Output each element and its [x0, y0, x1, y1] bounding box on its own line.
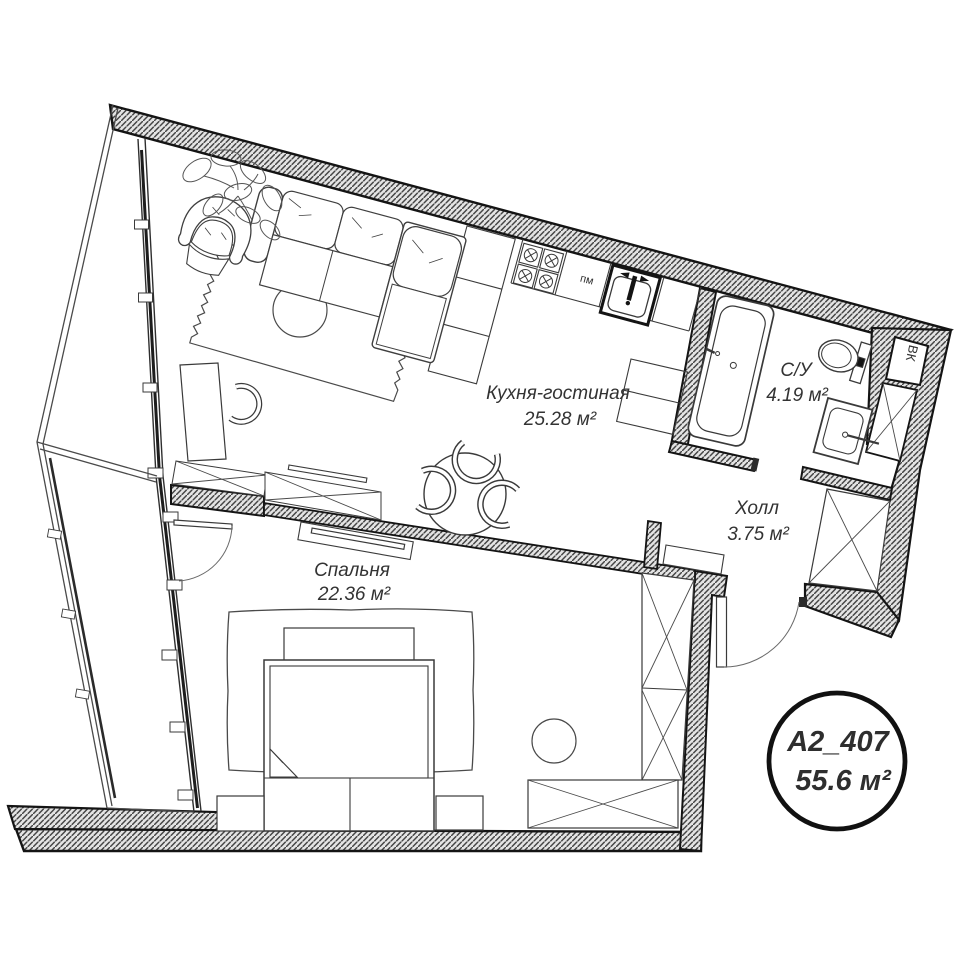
svg-text:Холл: Холл [734, 498, 779, 519]
svg-text:Кухня-гостиная: Кухня-гостиная [486, 383, 630, 404]
svg-text:22.36 м²: 22.36 м² [317, 584, 391, 605]
svg-text:4.19 м²: 4.19 м² [766, 385, 828, 406]
svg-text:С/У: С/У [780, 360, 813, 381]
svg-text:3.75 м²: 3.75 м² [727, 524, 789, 545]
svg-text:Спальня: Спальня [314, 560, 390, 581]
svg-text:A2_407: A2_407 [786, 726, 890, 758]
svg-text:25.28 м²: 25.28 м² [523, 409, 597, 430]
svg-text:55.6 м²: 55.6 м² [795, 765, 892, 797]
